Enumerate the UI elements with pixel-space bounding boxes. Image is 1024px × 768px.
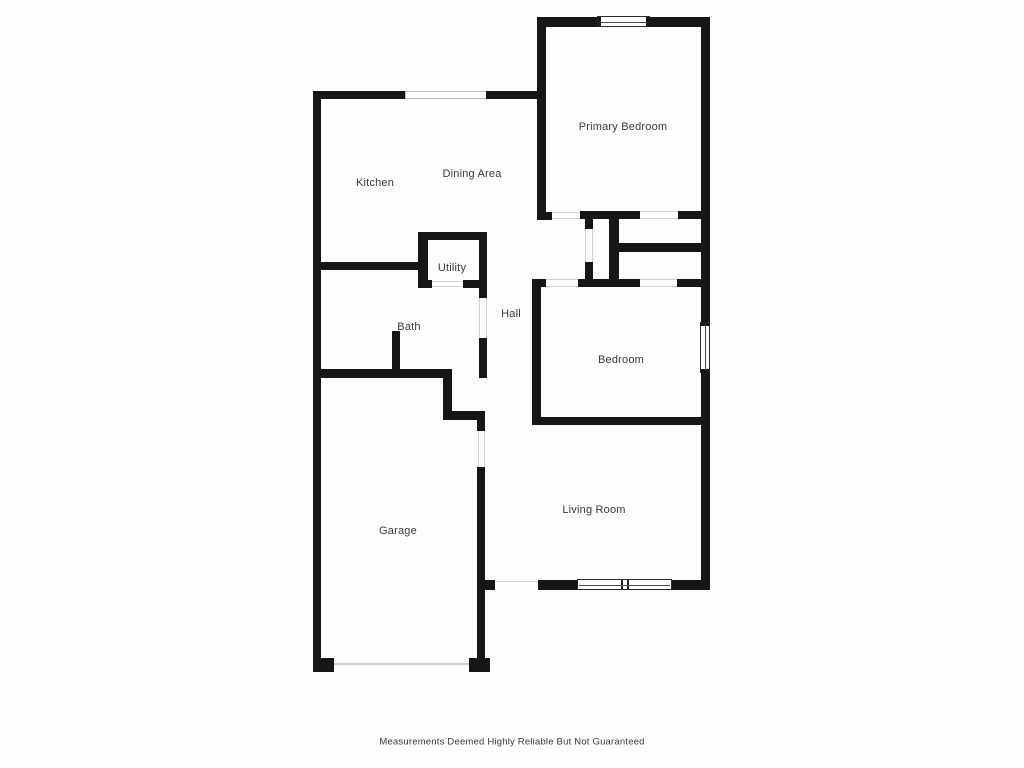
room-label-bedroom: Bedroom bbox=[598, 354, 644, 366]
utility-door-opening bbox=[432, 286, 463, 287]
window-tick bbox=[701, 323, 709, 326]
room-label-living-room: Living Room bbox=[562, 504, 625, 516]
primary-closet-opening bbox=[640, 211, 678, 212]
room-label-dining-area: Dining Area bbox=[442, 168, 501, 180]
floorplan: Primary Bedroom Kitchen Dining Area Util… bbox=[0, 0, 1024, 768]
hall-closet-door-opening bbox=[585, 229, 586, 262]
wall-closet-center bbox=[609, 211, 619, 287]
room-label-utility: Utility bbox=[438, 262, 466, 274]
bath-door-opening bbox=[486, 298, 487, 338]
wall-kitchen-top-left bbox=[313, 91, 406, 99]
wall-utility-bottom-right bbox=[463, 280, 487, 288]
bedroom-door-opening bbox=[546, 286, 578, 287]
wall-bedroom-bottom bbox=[532, 417, 710, 425]
garage-entry-door-opening bbox=[484, 431, 485, 467]
primary-closet-opening bbox=[640, 218, 678, 219]
wall-primary-top-left bbox=[537, 17, 601, 27]
front-door-opening bbox=[495, 581, 538, 582]
wall-livingroom-bottom-left bbox=[538, 580, 577, 590]
wall-kitchen-top-right bbox=[486, 91, 546, 99]
utility-door-opening bbox=[432, 281, 463, 282]
room-label-hall: Hall bbox=[501, 308, 521, 320]
wall-livingroom-bottom-right bbox=[672, 580, 710, 590]
wall-garage-right bbox=[477, 467, 485, 658]
window-divider bbox=[621, 580, 623, 589]
wall-primary-bottom-stub bbox=[537, 212, 552, 220]
wall-garage-right-upper bbox=[477, 411, 485, 431]
room-label-bath: Bath bbox=[397, 321, 420, 333]
hall-closet-door-opening bbox=[592, 229, 593, 262]
wall-exterior-right-upper bbox=[701, 17, 710, 323]
wall-garage-bottom-left bbox=[313, 658, 334, 672]
kitchen-window bbox=[405, 91, 487, 99]
room-label-primary-bedroom: Primary Bedroom bbox=[579, 121, 668, 133]
wall-bedroom-left bbox=[532, 279, 541, 425]
primary-door-opening bbox=[552, 218, 580, 219]
wall-utility-right bbox=[479, 232, 487, 298]
wall-utility-top bbox=[418, 232, 487, 240]
room-label-kitchen: Kitchen bbox=[356, 177, 394, 189]
wall-primary-left bbox=[537, 17, 546, 213]
primary-bedroom-window bbox=[597, 16, 650, 27]
window-divider bbox=[627, 580, 629, 589]
primary-door-opening bbox=[552, 212, 580, 213]
livingroom-window bbox=[577, 579, 672, 590]
wall-utility-bottom-left bbox=[418, 280, 432, 288]
wall-garage-top bbox=[313, 369, 452, 378]
window-tick bbox=[598, 17, 601, 26]
wall-exterior-right-lower bbox=[701, 372, 710, 590]
garage-entry-door-opening bbox=[478, 431, 479, 467]
wall-bath-right bbox=[479, 338, 487, 378]
wall-kitchen-bottom bbox=[313, 262, 418, 270]
bedroom-closet-opening bbox=[640, 279, 677, 280]
bath-door-opening bbox=[479, 298, 480, 338]
wall-exterior-left bbox=[313, 91, 321, 672]
wall-primary-bottom-right bbox=[678, 211, 710, 219]
bedroom-closet-opening bbox=[640, 286, 677, 287]
wall-bedroom-top-right bbox=[677, 279, 710, 287]
wall-bedroom-top-mid bbox=[578, 279, 640, 287]
wall-hallcloset-left-upper bbox=[585, 219, 593, 229]
disclaimer-text: Measurements Deemed Highly Reliable But … bbox=[379, 737, 644, 748]
room-label-garage: Garage bbox=[379, 525, 417, 537]
bedroom-door-opening bbox=[546, 279, 578, 280]
garage-door-opening bbox=[334, 663, 469, 665]
wall-garage-bottom-right bbox=[469, 658, 490, 672]
wall-closet-divider bbox=[619, 243, 710, 252]
bedroom-window bbox=[700, 322, 710, 373]
